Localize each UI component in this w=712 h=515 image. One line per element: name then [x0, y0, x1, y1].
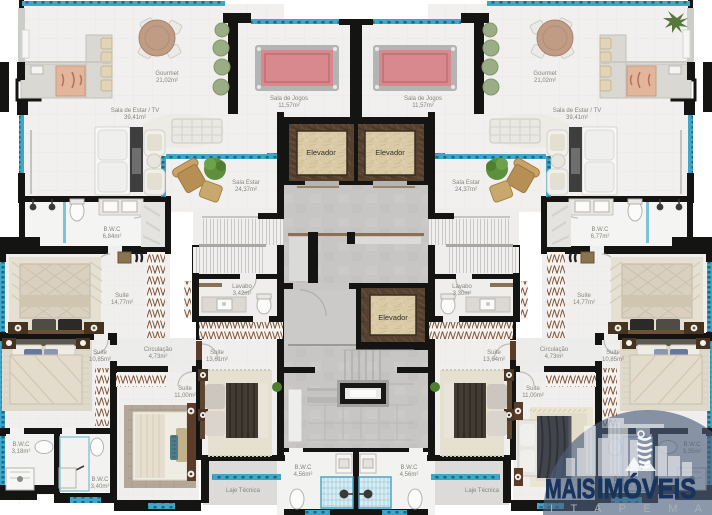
svg-text:13,64m²: 13,64m² — [483, 357, 505, 363]
svg-text:3,30m²: 3,30m² — [453, 291, 472, 297]
svg-text:Sala de Estar / TV: Sala de Estar / TV — [553, 108, 602, 114]
svg-text:4,73m²: 4,73m² — [545, 354, 564, 360]
svg-text:11,57m²: 11,57m² — [278, 103, 300, 109]
svg-text:Sala de Estar / TV: Sala de Estar / TV — [111, 108, 160, 114]
svg-text:11,00m²: 11,00m² — [522, 393, 544, 399]
svg-text:11,57m²: 11,57m² — [412, 103, 434, 109]
svg-text:6,84m²: 6,84m² — [103, 234, 122, 240]
svg-text:Elevador: Elevador — [378, 313, 408, 322]
svg-text:B.W.C: B.W.C — [591, 227, 609, 233]
svg-text:Suite: Suite — [487, 350, 501, 356]
svg-text:Gourmet: Gourmet — [155, 71, 179, 77]
svg-text:Elevador: Elevador — [375, 148, 405, 157]
svg-text:13,61m²: 13,61m² — [206, 357, 228, 363]
svg-text:Sala Estar: Sala Estar — [232, 180, 260, 186]
svg-text:MAIS: MAIS — [545, 474, 595, 505]
svg-text:Elevador: Elevador — [306, 148, 336, 157]
svg-text:B.W.C: B.W.C — [91, 477, 109, 483]
svg-text:3,40m²: 3,40m² — [91, 484, 110, 490]
svg-text:Sala Estar: Sala Estar — [452, 180, 480, 186]
svg-text:IMÓVEIS: IMÓVEIS — [597, 472, 696, 504]
svg-text:Suite: Suite — [115, 293, 129, 299]
svg-text:4,56m²: 4,56m² — [294, 472, 313, 478]
svg-text:Laje Técnica: Laje Técnica — [465, 488, 500, 494]
svg-text:39,41m²: 39,41m² — [124, 115, 146, 121]
svg-text:39,41m²: 39,41m² — [566, 115, 588, 121]
svg-text:Laje Técnica: Laje Técnica — [226, 488, 261, 494]
svg-text:14,77m²: 14,77m² — [573, 300, 595, 306]
svg-text:Suite: Suite — [606, 350, 620, 356]
svg-text:B.W.C: B.W.C — [103, 227, 121, 233]
svg-text:21,02m²: 21,02m² — [156, 78, 178, 84]
svg-text:3,42m²: 3,42m² — [233, 291, 252, 297]
svg-text:Suite: Suite — [210, 350, 224, 356]
svg-text:B.W.C: B.W.C — [400, 465, 418, 471]
svg-text:B.W.C: B.W.C — [12, 442, 30, 448]
svg-text:Circulação: Circulação — [144, 347, 173, 353]
svg-text:Sala de Jogos: Sala de Jogos — [270, 96, 308, 102]
svg-text:24,37m²: 24,37m² — [455, 187, 477, 193]
svg-text:4,56m²: 4,56m² — [400, 472, 419, 478]
svg-text:B.W.C: B.W.C — [294, 465, 312, 471]
svg-text:Suite: Suite — [178, 386, 192, 392]
svg-text:Suite: Suite — [526, 386, 540, 392]
svg-text:21,02m²: 21,02m² — [534, 78, 556, 84]
svg-text:Lavabo: Lavabo — [452, 284, 472, 290]
svg-text:Lavabo: Lavabo — [232, 284, 252, 290]
svg-text:10,85m²: 10,85m² — [89, 357, 111, 363]
svg-text:Circulação: Circulação — [540, 347, 569, 353]
svg-text:14,77m²: 14,77m² — [111, 300, 133, 306]
svg-text:11,00m²: 11,00m² — [174, 393, 196, 399]
svg-text:24,37m²: 24,37m² — [235, 187, 257, 193]
svg-text:3,18m²: 3,18m² — [12, 449, 31, 455]
svg-text:Suite: Suite — [577, 293, 591, 299]
svg-text:Gourmet: Gourmet — [533, 71, 557, 77]
svg-text:4,73m²: 4,73m² — [149, 354, 168, 360]
svg-text:Suite: Suite — [93, 350, 107, 356]
svg-text:10,85m²: 10,85m² — [602, 357, 624, 363]
svg-text:Sala de Jogos: Sala de Jogos — [404, 96, 442, 102]
svg-text:6,77m²: 6,77m² — [591, 234, 610, 240]
